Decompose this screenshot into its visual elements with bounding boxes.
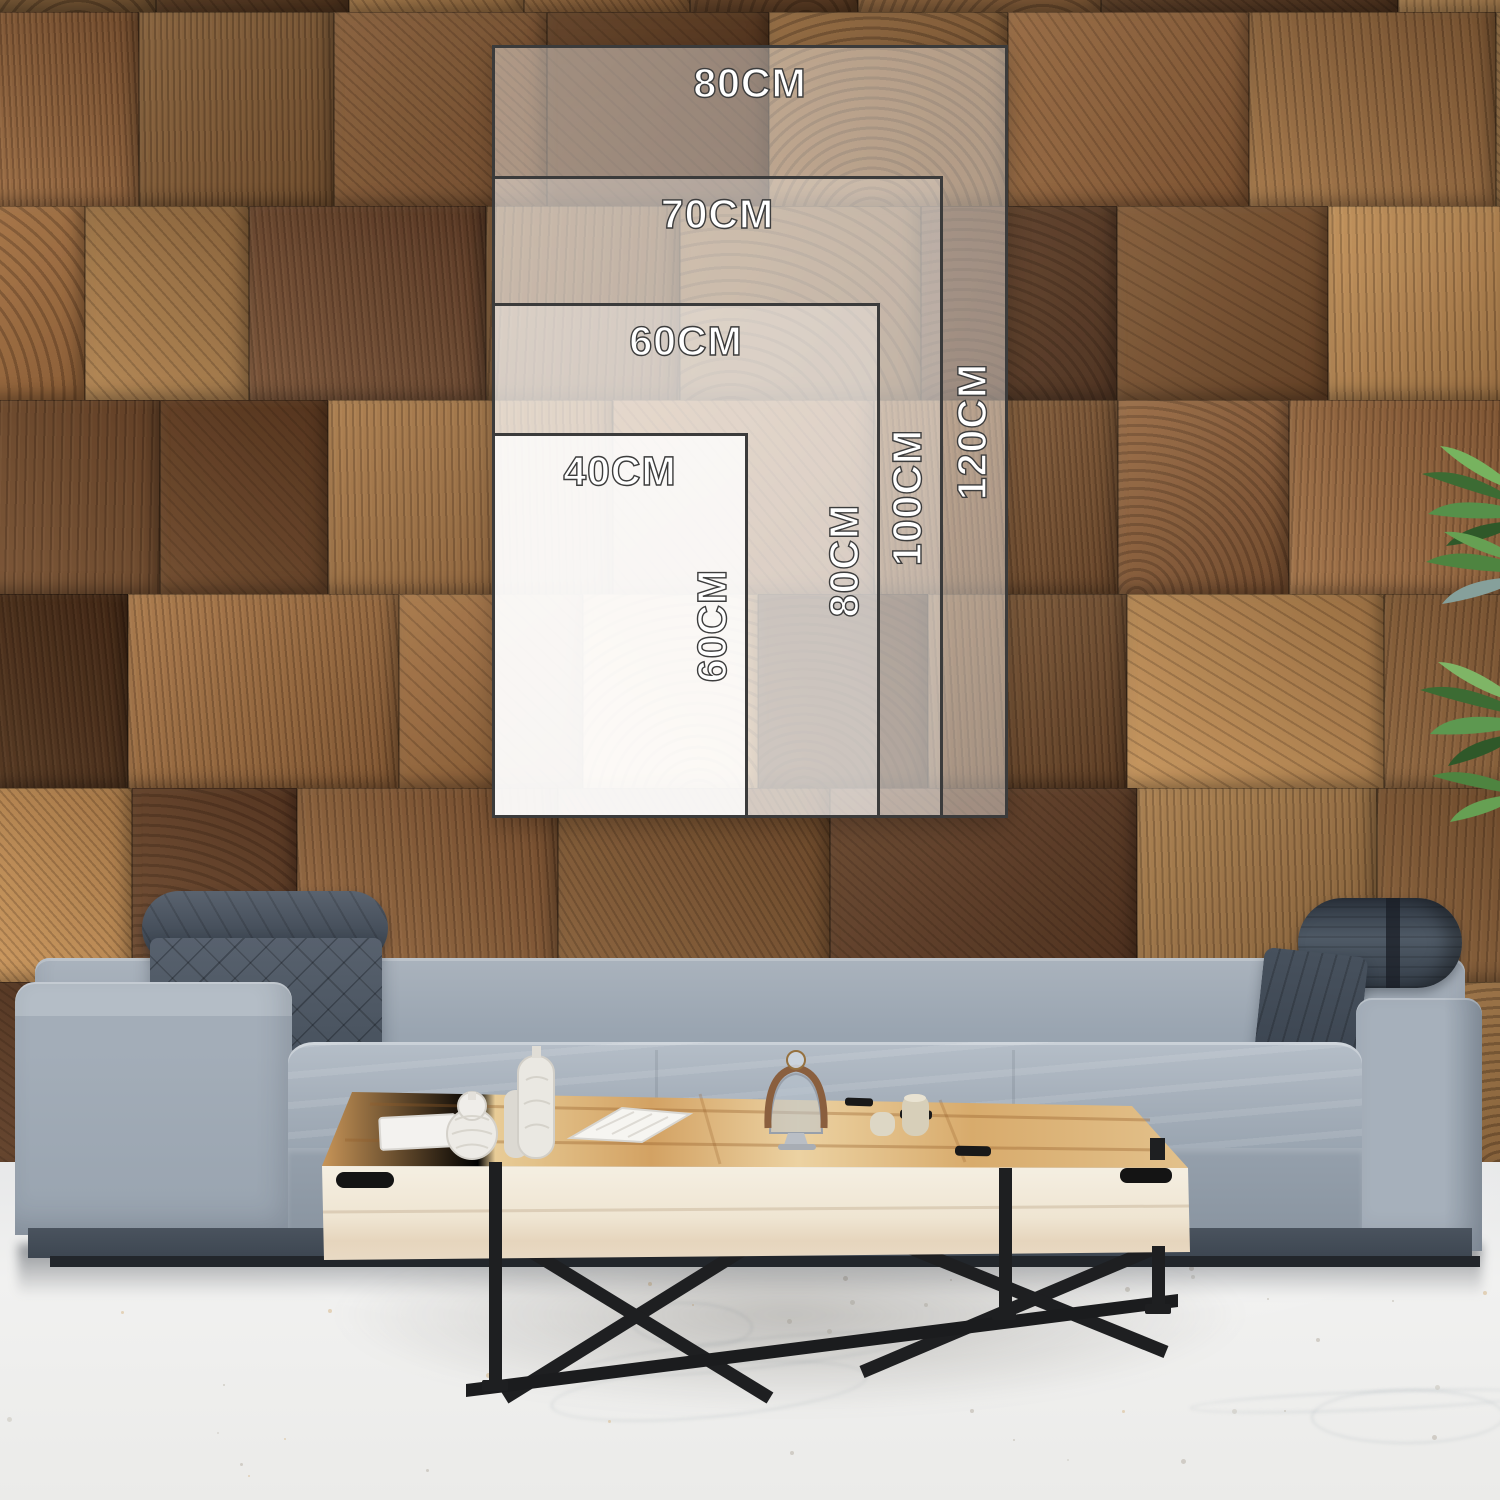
plant-leaves [1420,446,1500,822]
potted-plant-leaves [0,0,1500,1500]
product-size-mockup: 80CM 120CM 70CM 100CM 60CM 80CM 40CM 60C… [0,0,1500,1500]
